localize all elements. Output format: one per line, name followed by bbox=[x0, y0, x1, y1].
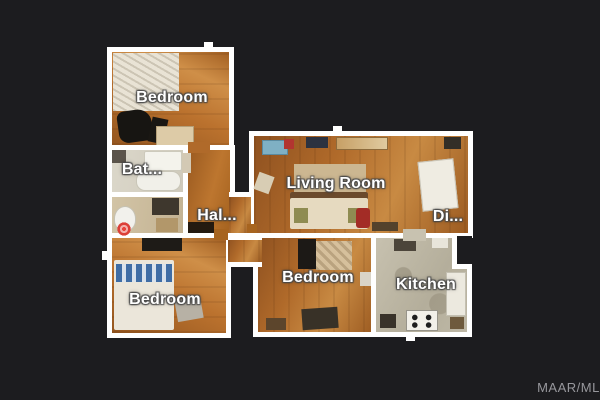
floor-shadow bbox=[444, 137, 461, 149]
room-bedroom-bottom-left bbox=[107, 233, 231, 338]
room-label-bedroom-bottom-left: Bedroom bbox=[129, 291, 201, 309]
desk bbox=[142, 238, 182, 251]
room-label-bedroom-top-left: Bedroom bbox=[136, 89, 208, 107]
room-label-bathroom: Bat... bbox=[122, 161, 162, 179]
360-view-point-icon[interactable] bbox=[117, 222, 131, 236]
floor-shadow bbox=[372, 222, 398, 231]
door-opening-bedroom-hall bbox=[188, 142, 210, 153]
room-label-bedroom-middle: Bedroom bbox=[282, 269, 354, 287]
cabinet bbox=[432, 238, 448, 248]
dresser bbox=[266, 318, 286, 330]
room-label-hall: Hal... bbox=[197, 207, 236, 225]
closet-shadow bbox=[152, 198, 179, 215]
room-label-living-room: Living Room bbox=[286, 175, 385, 193]
cabinet bbox=[450, 317, 464, 329]
stove bbox=[406, 310, 438, 331]
watermark: MAAR/MLS bbox=[537, 380, 600, 395]
floor-shadow bbox=[298, 239, 316, 269]
room-label-kitchen: Kitchen bbox=[396, 276, 456, 294]
floor-shadow bbox=[301, 307, 338, 330]
red-armchair bbox=[356, 208, 370, 228]
floor-shadow bbox=[306, 137, 328, 148]
bed bbox=[316, 241, 352, 270]
kitchen-wall-notch bbox=[452, 236, 472, 269]
chair bbox=[253, 172, 274, 194]
door-opening-dining-kitchen bbox=[403, 229, 426, 241]
vestibule bbox=[228, 238, 262, 267]
passage-opening-hall-living bbox=[247, 224, 257, 233]
wall-segment bbox=[226, 233, 262, 240]
door-opening-bathroom-hall bbox=[182, 153, 191, 173]
red-chair bbox=[284, 139, 294, 149]
floor-plan-canvas: Bedroom Bat... Hal... Living Room Di... … bbox=[0, 0, 600, 400]
floor-shadow bbox=[380, 314, 396, 328]
room-label-dining-room: Di... bbox=[433, 208, 463, 226]
cabinet bbox=[156, 218, 178, 232]
sideboard bbox=[336, 137, 388, 150]
bed-pillows bbox=[116, 264, 172, 282]
pillow bbox=[294, 208, 308, 223]
door-opening-bedroom-bottom-left bbox=[214, 229, 228, 240]
dining-table bbox=[417, 158, 458, 211]
